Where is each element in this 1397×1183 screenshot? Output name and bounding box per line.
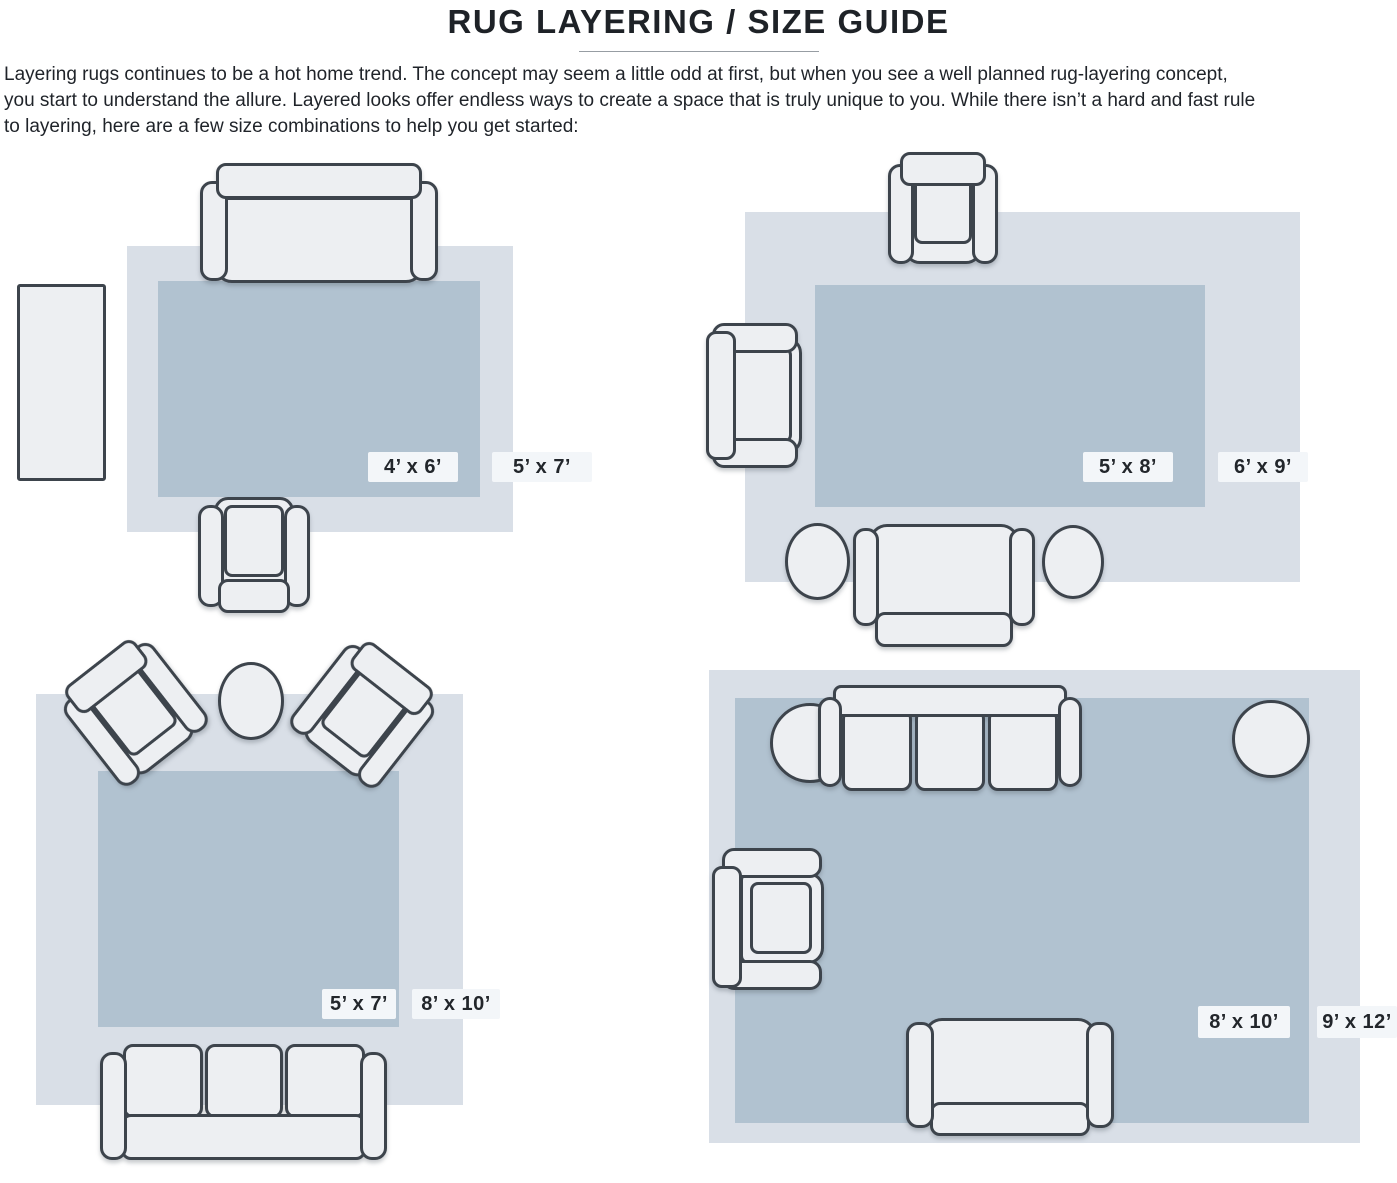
title-underline [579,51,819,52]
armchair-cushion [750,882,812,954]
sofa-cushion [842,709,912,791]
armchair [198,495,310,615]
armchair-back [712,866,742,988]
size-label-outer: 5’ x 7’ [492,452,592,482]
armchair-back [218,579,290,613]
intro-line: Layering rugs continues to be a hot home… [4,62,1255,88]
size-label-inner: 8’ x 10’ [1198,1006,1290,1038]
sofa-arm-right [360,1052,387,1160]
sofa-arm-left [100,1052,127,1160]
sofa-arm-right [1009,528,1035,626]
console-table [17,284,106,481]
sofa [200,163,438,285]
armchair [888,152,998,268]
loveseat [706,323,802,468]
size-label-outer: 9’ x 12’ [1317,1006,1397,1038]
sofa-seat [214,197,424,283]
side-table [1042,525,1104,599]
armchair-cushion [224,505,284,577]
armchair [710,846,825,990]
side-table [1232,700,1310,778]
sofa-back [875,612,1013,647]
size-label-inner: 5’ x 7’ [322,989,396,1019]
size-label-outer: 8’ x 10’ [412,989,500,1019]
loveseat-back [930,1102,1090,1136]
sofa-back [833,685,1067,717]
intro-paragraph: Layering rugs continues to be a hot home… [4,62,1255,140]
sofa-back [216,163,422,199]
three-seat-sofa [100,1044,387,1160]
loveseat [906,1016,1114,1136]
round-table [218,662,284,740]
sofa-cushion [205,1044,283,1118]
page-title: RUG LAYERING / SIZE GUIDE [0,0,1397,41]
sofa-cushion [988,709,1058,791]
size-label-inner: 4’ x 6’ [368,452,458,482]
sofa-seat [869,524,1019,621]
sofa [853,520,1035,647]
loveseat-back [706,331,736,460]
sofa-cushion [285,1044,365,1118]
intro-line: to layering, here are a few size combina… [4,114,1255,140]
loveseat-arm-left [906,1022,934,1128]
size-label-inner: 5’ x 8’ [1083,452,1173,482]
side-table [785,523,850,600]
loveseat-arm-right [1086,1022,1114,1128]
sofa-arm-right [1058,697,1082,787]
rug-size-guide-infographic: RUG LAYERING / SIZE GUIDE Layering rugs … [0,0,1397,1183]
size-label-outer: 6’ x 9’ [1218,452,1308,482]
sofa-back [121,1114,366,1160]
loveseat-cushion [732,347,792,443]
intro-line: you start to understand the allure. Laye… [4,88,1255,114]
armchair-back [900,152,986,186]
three-seat-sofa [818,685,1082,795]
sofa-arm-left [853,528,879,626]
sofa-cushion [915,709,985,791]
sofa-cushion [123,1044,203,1118]
sofa-arm-left [818,697,842,787]
